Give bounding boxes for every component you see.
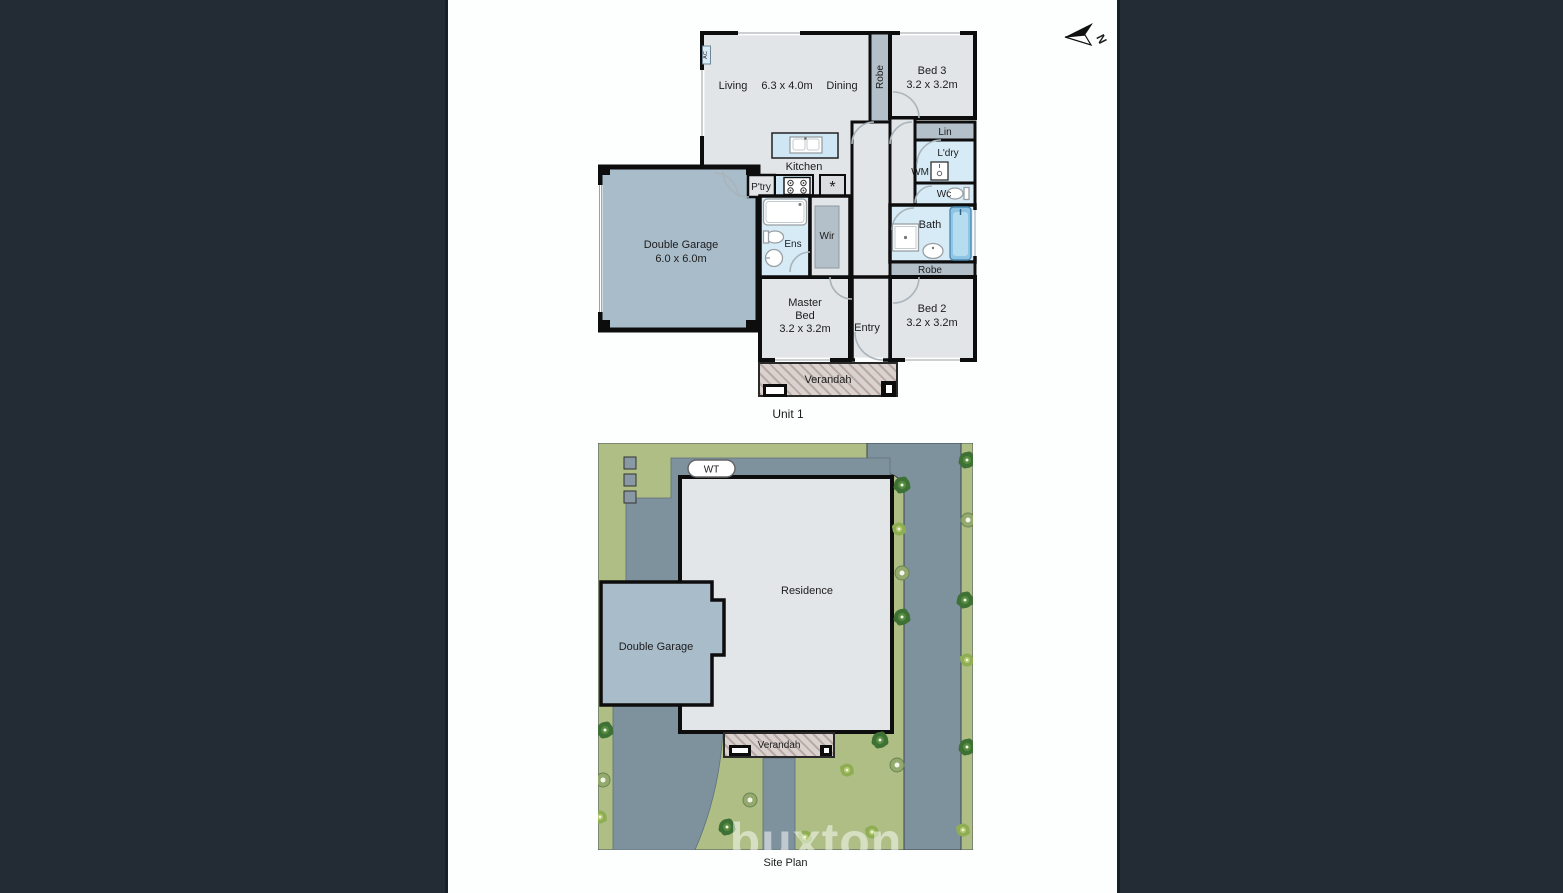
- garden-square: [624, 457, 636, 469]
- bed2-label: Bed 2: [918, 303, 947, 315]
- vanity-icon: [923, 244, 943, 259]
- bed2-dim-label: 3.2 x 3.2m: [906, 317, 957, 329]
- garden-squares: [624, 457, 636, 503]
- entry-hall: [852, 277, 890, 360]
- garage-dim-label: 6.0 x 6.0m: [655, 253, 706, 265]
- pier: [746, 165, 758, 175]
- living-dim-label: 6.3 x 4.0m: [761, 80, 812, 92]
- robe1-label: Robe: [875, 65, 886, 89]
- garden-square: [624, 491, 636, 503]
- pier: [746, 320, 758, 330]
- entry-label: Entry: [854, 322, 880, 334]
- wir-label: Wir: [820, 231, 836, 242]
- pier: [598, 320, 610, 330]
- dining-label: Dining: [826, 80, 857, 92]
- ac-label: AC: [703, 51, 709, 59]
- site-plan: WT Residence Double Garage: [598, 443, 973, 850]
- verandah-post: [820, 745, 832, 756]
- laundry-fixtures: [931, 162, 948, 180]
- verandah-post: [881, 381, 896, 397]
- fridge-icon: *: [829, 179, 835, 196]
- master-label-1: Master: [788, 297, 822, 309]
- site-verandah-label: Verandah: [758, 740, 801, 751]
- bed3-label: Bed 3: [918, 65, 947, 77]
- bathtub-icon: [764, 199, 807, 225]
- ac-unit: AC: [703, 46, 711, 64]
- hall-corridor: [852, 122, 890, 277]
- garden-square: [624, 474, 636, 486]
- unit1-verandah: Verandah: [758, 362, 898, 397]
- pier: [598, 165, 610, 175]
- water-tank: WT: [688, 460, 735, 477]
- kitchen-island: [772, 133, 838, 158]
- site-verandah: Verandah: [723, 732, 835, 758]
- site-garage-label: Double Garage: [619, 641, 694, 653]
- north-arrow-dark-blade: [1065, 23, 1093, 37]
- bed3-dim-label: 3.2 x 3.2m: [906, 79, 957, 91]
- garage-label: Double Garage: [644, 239, 719, 251]
- robe2-label: Robe: [918, 265, 942, 276]
- wm-label: WM: [911, 167, 929, 178]
- master-dim-label: 3.2 x 3.2m: [779, 323, 830, 335]
- ens-label: Ens: [784, 239, 801, 250]
- verandah-post: [763, 384, 787, 397]
- cooktop-icon: [784, 178, 810, 195]
- ldry-label: L'dry: [937, 148, 958, 159]
- watermark: buxton: [700, 812, 932, 870]
- verandah-label: Verandah: [804, 374, 851, 386]
- floorplan-page: N: [448, 0, 1117, 893]
- north-label: N: [1093, 32, 1109, 46]
- north-arrow-light-blade: [1065, 35, 1091, 45]
- bath-label: Bath: [919, 219, 942, 231]
- wt-label: WT: [704, 465, 720, 476]
- kitchen-label: Kitchen: [786, 161, 823, 173]
- wc-label: Wc: [937, 189, 951, 200]
- master-label-2: Bed: [795, 310, 815, 322]
- living-label: Living: [719, 80, 748, 92]
- lin-label: Lin: [938, 127, 951, 138]
- ptry-label: P'try: [751, 182, 771, 193]
- north-arrow: N: [1058, 14, 1118, 54]
- unit1-title: Unit 1: [598, 407, 978, 421]
- verandah-post: [729, 745, 751, 756]
- residence-label: Residence: [781, 585, 833, 597]
